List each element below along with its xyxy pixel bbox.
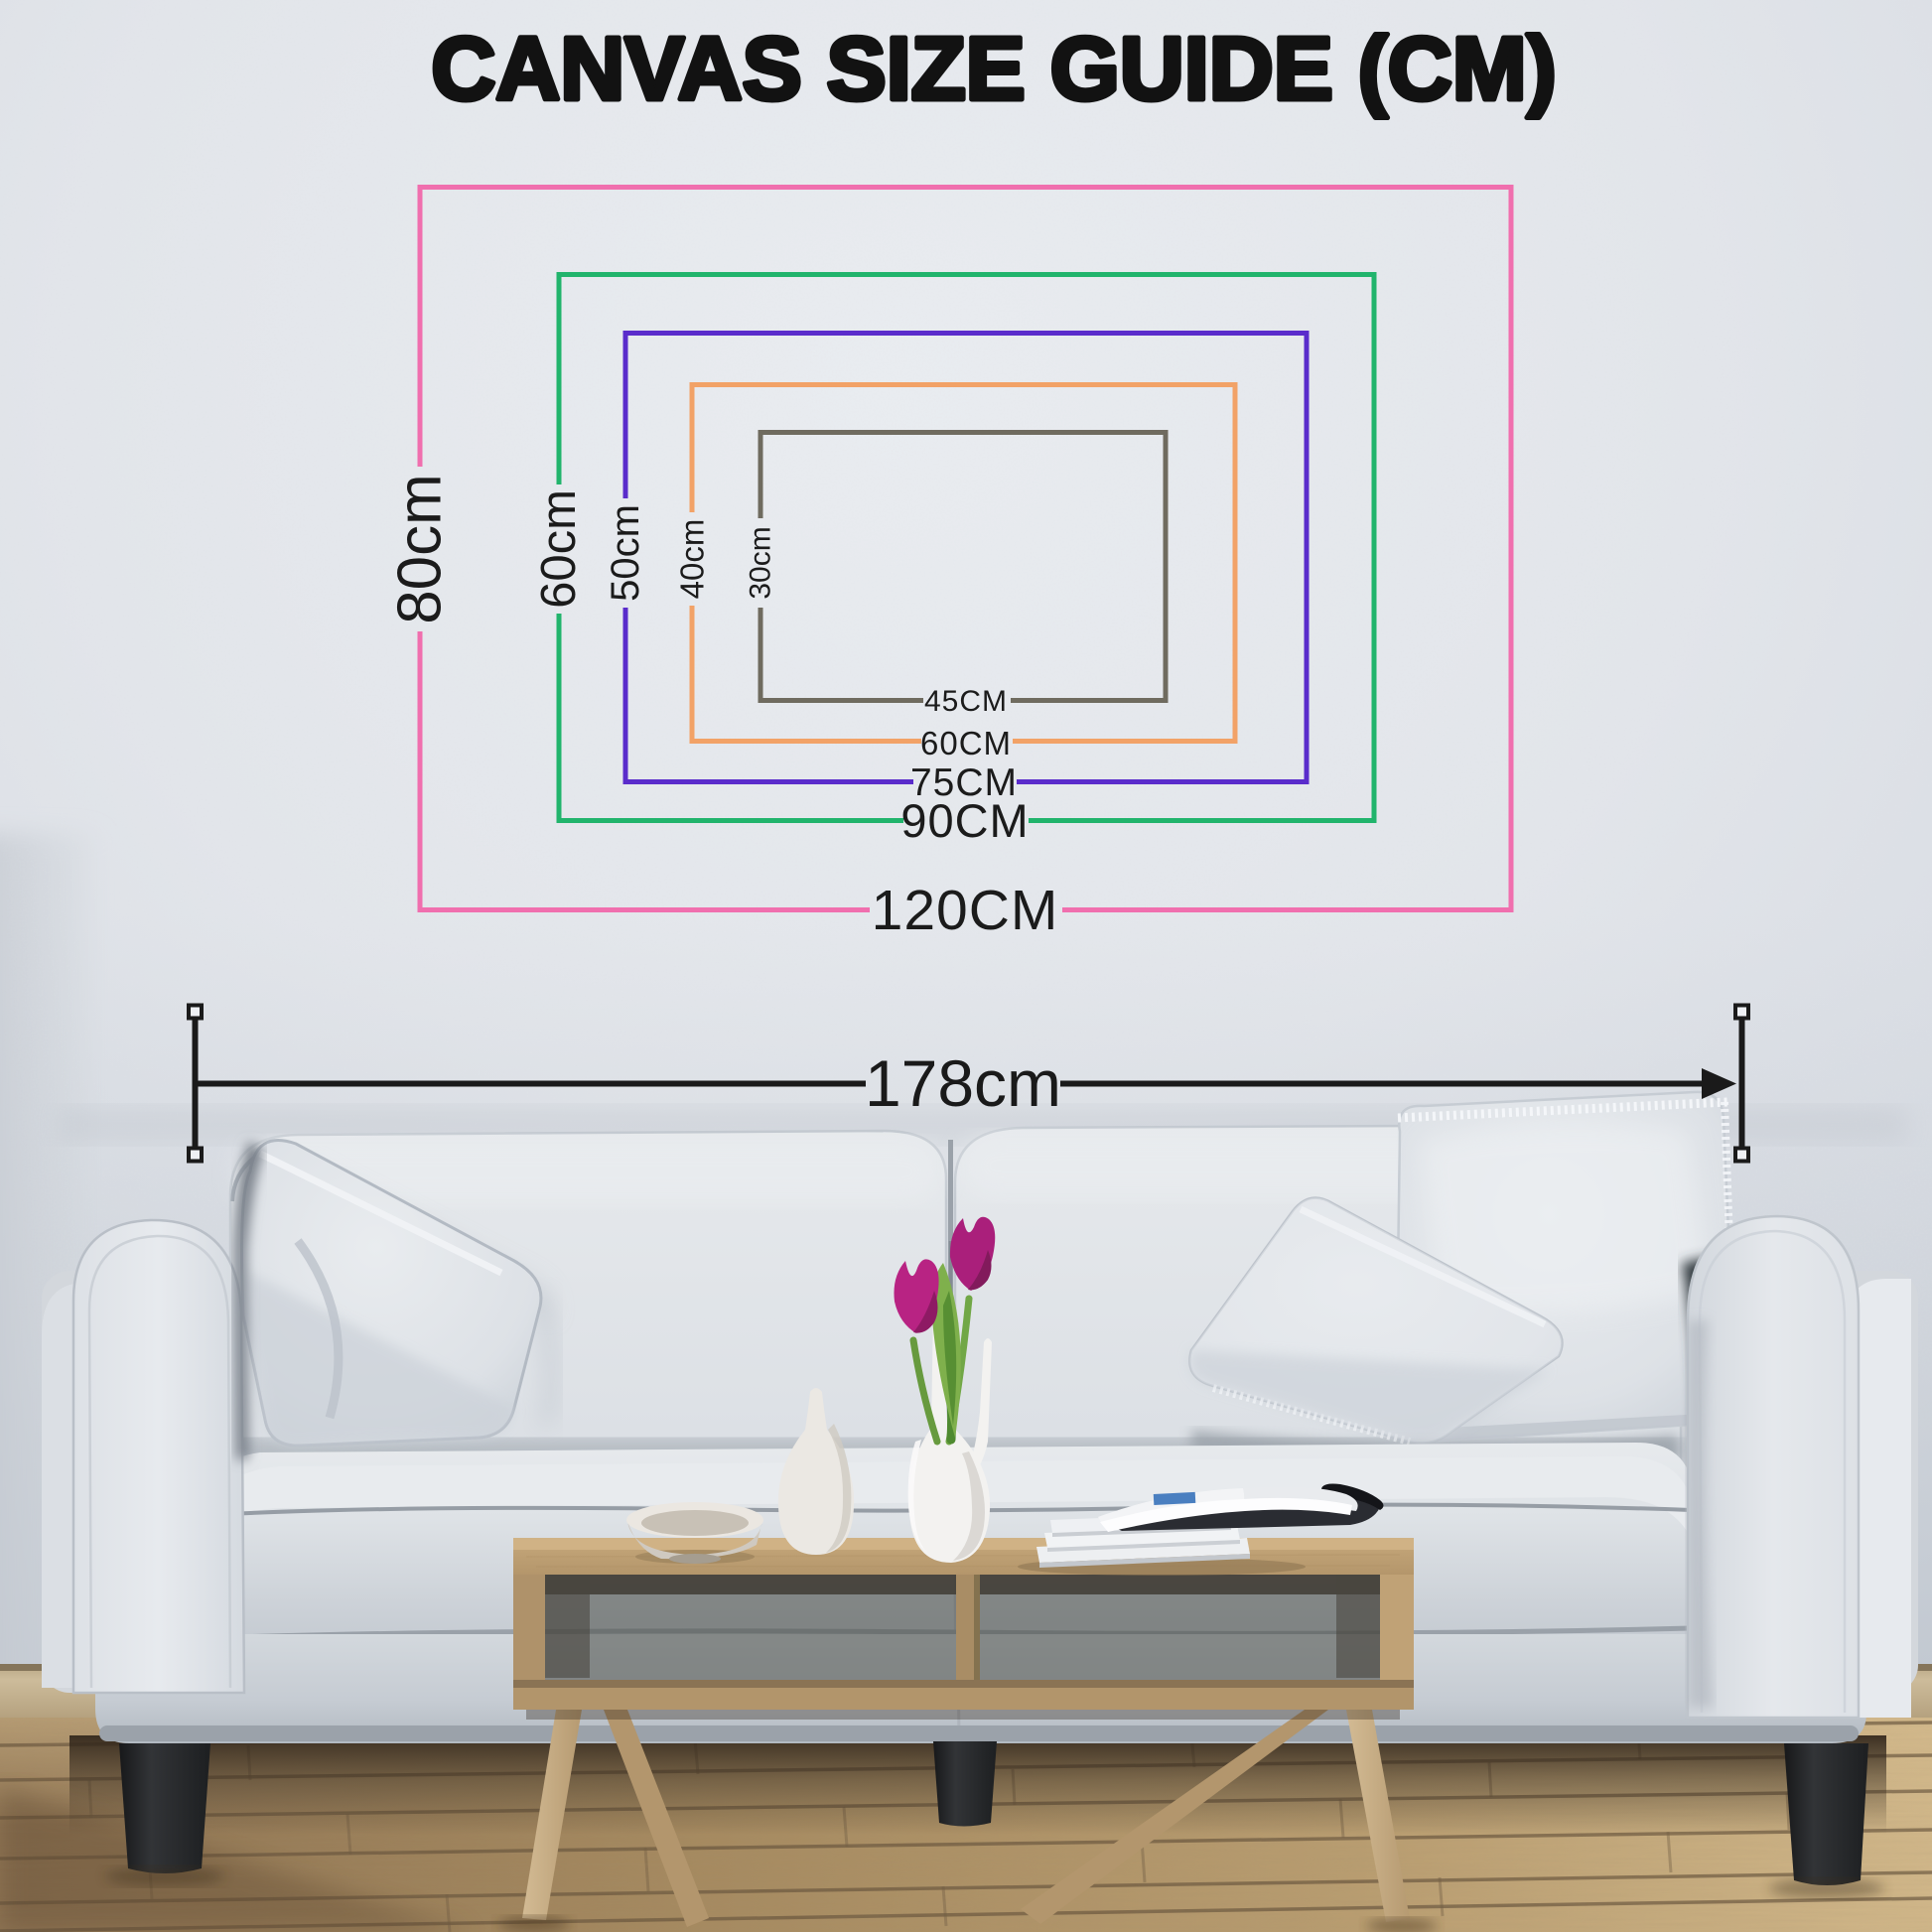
svg-text:40cm: 40cm <box>674 519 711 600</box>
svg-text:60CM: 60CM <box>920 725 1012 761</box>
svg-text:30cm: 30cm <box>745 526 777 599</box>
svg-text:50cm: 50cm <box>604 504 647 602</box>
svg-text:90CM: 90CM <box>900 794 1029 847</box>
svg-text:80cm: 80cm <box>386 474 455 624</box>
svg-text:60cm: 60cm <box>532 489 586 609</box>
svg-text:45CM: 45CM <box>924 685 1008 718</box>
svg-text:120CM: 120CM <box>872 879 1059 942</box>
svg-text:178cm: 178cm <box>865 1046 1061 1120</box>
svg-text:CANVAS SIZE GUIDE (CM): CANVAS SIZE GUIDE (CM) <box>431 20 1556 119</box>
